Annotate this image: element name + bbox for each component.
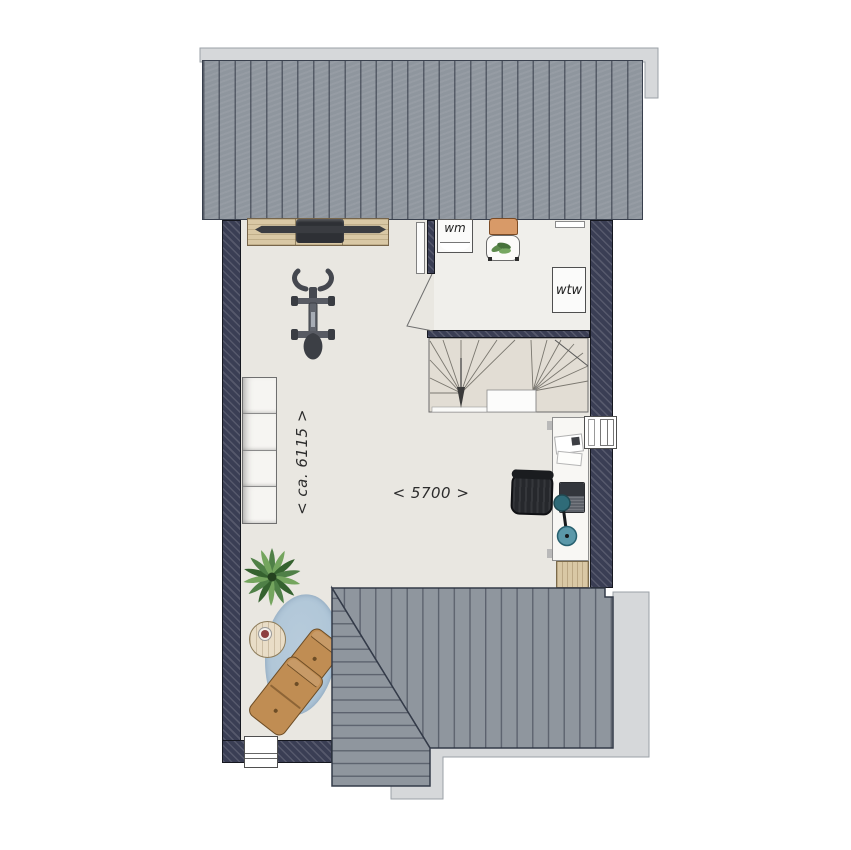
door-swing: [400, 270, 438, 334]
window-right: [584, 416, 617, 449]
washing-machine-label: wm: [438, 221, 472, 235]
window-pane: [600, 419, 614, 446]
barbell-bar: [255, 225, 386, 234]
wardrobe-section: [243, 487, 276, 523]
chair-foot: [515, 257, 519, 261]
wardrobe-section: [243, 378, 276, 414]
cushion-button: [294, 681, 300, 687]
window-sill-line: [245, 753, 277, 754]
office-chair: [510, 473, 553, 515]
heat-recovery-label: wtw: [556, 283, 582, 298]
desk-leg: [547, 421, 552, 430]
dimension-depth: < ca. 6115 >: [293, 402, 313, 522]
staircase: [427, 338, 590, 414]
wardrobe: [242, 377, 277, 524]
washing-machine: wm: [437, 219, 473, 253]
ventilation-grille: [555, 221, 585, 228]
roof-bottom: [328, 585, 652, 803]
coffee-cup: [258, 627, 272, 641]
floor-plan: wm wtw: [0, 0, 851, 850]
desk-leg: [547, 549, 552, 558]
cushion-seam: [270, 684, 301, 709]
stair-landing: [487, 390, 536, 412]
wardrobe-section: [243, 451, 276, 487]
plant: [241, 546, 303, 608]
dimension-width: < 5700 >: [371, 484, 491, 504]
exercise-bike: [285, 265, 341, 363]
door-leaf: [416, 222, 425, 274]
roof-top: [202, 60, 643, 220]
papers: [556, 451, 582, 467]
heat-recovery-unit: wtw: [552, 267, 586, 313]
chair-foot: [488, 257, 492, 261]
window-bottom: [244, 736, 278, 768]
window-sill-line: [245, 758, 277, 759]
wardrobe-section: [243, 414, 276, 450]
cushion-button: [273, 708, 279, 714]
dresser: [556, 561, 589, 588]
chair-back: [489, 218, 518, 235]
cushion-button: [312, 656, 318, 662]
wall-left: [222, 220, 241, 763]
window-pane: [588, 419, 595, 446]
washing-machine-front: [440, 242, 470, 251]
desk-lamp: [549, 491, 585, 547]
wall-right: [590, 220, 613, 588]
wall-stairs: [427, 330, 590, 338]
leaf-cushion: [490, 238, 516, 258]
wall-divider: [427, 220, 435, 274]
